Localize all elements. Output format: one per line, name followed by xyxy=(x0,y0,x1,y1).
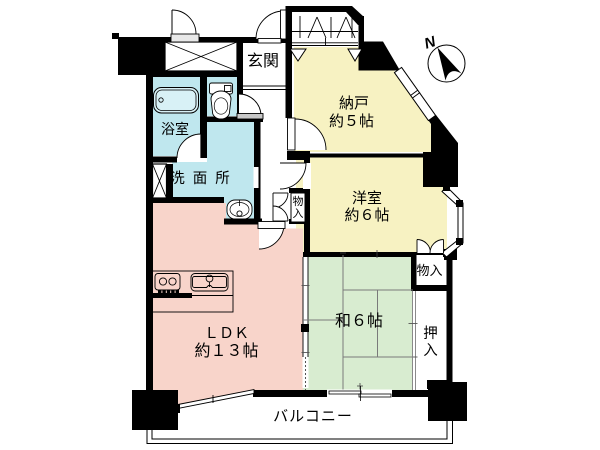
svg-text:和６帖: 和６帖 xyxy=(335,312,383,330)
svg-text:浴室: 浴室 xyxy=(161,121,189,137)
svg-text:洋室: 洋室 xyxy=(352,190,382,207)
svg-text:約５帖: 約５帖 xyxy=(329,113,374,130)
svg-text:バルコニー: バルコニー xyxy=(273,408,353,425)
svg-text:納戸: 納戸 xyxy=(339,95,369,112)
svg-text:物: 物 xyxy=(293,194,304,208)
svg-text:約１３帖: 約１３帖 xyxy=(194,342,258,360)
svg-text:約６帖: 約６帖 xyxy=(344,207,389,224)
svg-text:押: 押 xyxy=(423,325,438,342)
svg-text:物入: 物入 xyxy=(416,263,442,278)
svg-text:玄関: 玄関 xyxy=(247,52,279,70)
svg-text:入: 入 xyxy=(423,343,438,359)
svg-text:入: 入 xyxy=(293,208,304,220)
svg-text:洗面所: 洗面所 xyxy=(170,170,238,187)
svg-text:ＬＤＫ: ＬＤＫ xyxy=(204,325,249,342)
